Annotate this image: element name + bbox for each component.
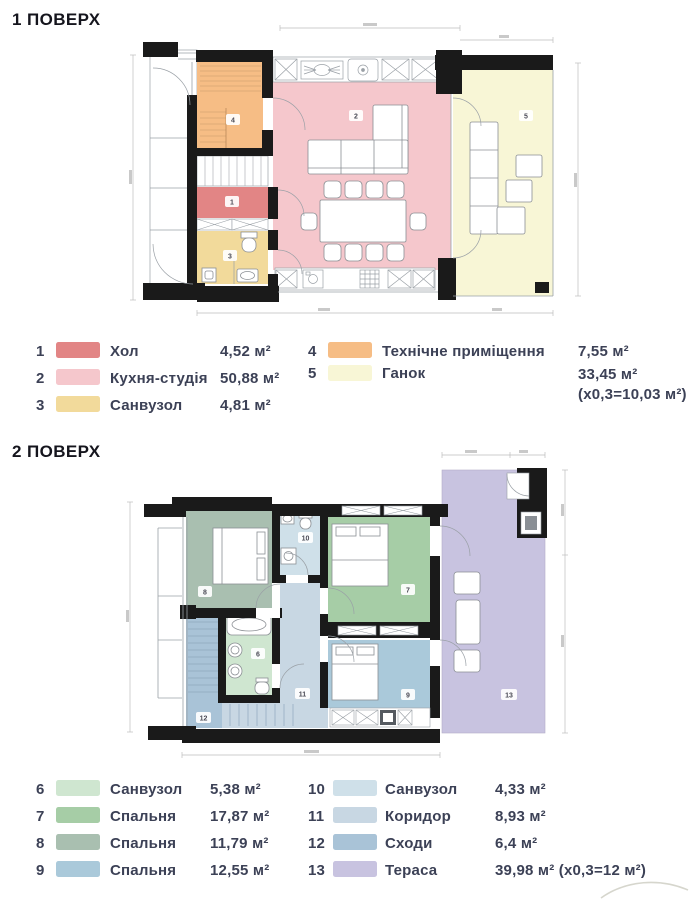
legend-item: 4 Технічне приміщення 7,55 м² (308, 338, 688, 365)
legend-area: 7,55 м² (578, 342, 688, 362)
chair-icon (324, 181, 341, 198)
table-icon (516, 155, 542, 177)
floor2-legend-right: 10 Санвузол 4,33 м² 11 Коридор 8,93 м² 1… (308, 776, 688, 884)
color-swatch (56, 780, 100, 796)
cabinet-x-icon (197, 219, 268, 230)
sink-icon (228, 643, 242, 657)
room-technical (197, 62, 263, 152)
svg-text:6: 6 (256, 652, 260, 659)
svg-text:9: 9 (406, 693, 410, 700)
legend-area: 4,52 м² (220, 342, 301, 362)
color-swatch (56, 834, 100, 850)
room-stairs-12 (186, 613, 222, 728)
chair-icon (454, 572, 480, 594)
legend-label: Санвузол (110, 781, 210, 798)
floor1-plan: 4 2 1 3 5 (120, 8, 690, 328)
color-swatch (56, 861, 100, 877)
color-swatch (328, 342, 372, 358)
legend-area: 5,38 м² (210, 780, 301, 800)
floor2-plan: 8 10 7 12 6 11 9 13 (110, 440, 590, 770)
color-swatch (333, 834, 377, 850)
legend-item: 7 Спальня 17,87 м² (36, 803, 301, 830)
legend-label: Коридор (385, 808, 495, 825)
legend-area: 50,88 м² (220, 369, 301, 389)
chair-icon (387, 244, 404, 261)
legend-item: 12 Сходи 6,4 м² (308, 830, 688, 857)
legend-label: Хол (110, 343, 220, 360)
color-swatch (333, 780, 377, 796)
chair-icon (454, 650, 480, 672)
chair-icon (366, 181, 383, 198)
floor2-heading: 2 ПОВЕРХ (12, 442, 100, 462)
svg-text:12: 12 (200, 716, 208, 723)
legend-label: Тераса (385, 862, 495, 879)
legend-item: 10 Санвузол 4,33 м² (308, 776, 688, 803)
svg-text:4: 4 (231, 118, 235, 125)
toilet-icon (255, 678, 269, 694)
legend-label: Сходи (385, 835, 495, 852)
legend-item: 11 Коридор 8,93 м² (308, 803, 688, 830)
washer-icon (205, 271, 213, 279)
legend-area: 33,45 м²(х0,3=10,03 м²) (578, 365, 688, 404)
color-swatch (56, 342, 100, 358)
chair-icon (345, 181, 362, 198)
legend-area: 6,4 м² (495, 834, 688, 854)
svg-text:3: 3 (228, 254, 232, 261)
legend-item: 3 Санвузол 4,81 м² (36, 392, 301, 419)
legend-label: Спальня (110, 862, 210, 879)
toilet-icon (241, 232, 257, 252)
svg-text:5: 5 (524, 114, 528, 121)
legend-label: Санвузол (385, 781, 495, 798)
chair-icon (324, 244, 341, 261)
floor1-legend-right: 4 Технічне приміщення 7,55 м² 5 Ганок 33… (308, 338, 688, 404)
legend-area: 4,81 м² (220, 396, 301, 416)
glass-wall (158, 517, 187, 726)
svg-text:13: 13 (505, 693, 513, 700)
sink-icon (228, 664, 242, 678)
legend-item: 9 Спальня 12,55 м² (36, 857, 301, 884)
floor1-legend-left: 1 Хол 4,52 м² 2 Кухня-студія 50,88 м² 3 … (36, 338, 301, 419)
room-porch (453, 70, 553, 296)
legend-label: Спальня (110, 835, 210, 852)
legend-item: 6 Санвузол 5,38 м² (36, 776, 301, 803)
chair-icon (410, 213, 426, 230)
stairs-icon (197, 156, 268, 186)
legend-label: Санвузол (110, 397, 220, 414)
chair-icon (345, 244, 362, 261)
legend-item: 1 Хол 4,52 м² (36, 338, 301, 365)
legend-label: Кухня-студія (110, 370, 220, 387)
legend-label: Технічне приміщення (382, 343, 578, 360)
legend-item: 8 Спальня 11,79 м² (36, 830, 301, 857)
legend-item: 5 Ганок 33,45 м²(х0,3=10,03 м²) (308, 365, 688, 404)
svg-text:2: 2 (354, 114, 358, 121)
color-swatch (328, 365, 372, 381)
page: 1 ПОВЕРХ (0, 0, 691, 900)
svg-text:11: 11 (299, 692, 307, 699)
color-swatch (333, 807, 377, 823)
chair-icon (387, 181, 404, 198)
svg-text:8: 8 (203, 590, 207, 597)
legend-area: 8,93 м² (495, 807, 688, 827)
legend-area: 17,87 м² (210, 807, 301, 827)
color-swatch (56, 807, 100, 823)
legend-item: 2 Кухня-студія 50,88 м² (36, 365, 301, 392)
svg-text:1: 1 (230, 200, 234, 207)
chair-icon (301, 213, 317, 230)
svg-text:10: 10 (302, 536, 310, 543)
legend-area: 11,79 м² (210, 834, 301, 854)
color-swatch (56, 369, 100, 385)
floor1-heading: 1 ПОВЕРХ (12, 10, 100, 30)
stove-icon (348, 59, 378, 81)
terrace-furniture (454, 572, 480, 672)
watermark-arc (598, 874, 691, 900)
floor2-legend-left: 6 Санвузол 5,38 м² 7 Спальня 17,87 м² 8 … (36, 776, 301, 884)
table-icon (506, 180, 532, 202)
legend-label: Ганок (382, 365, 578, 382)
kitchen-counter (275, 268, 435, 290)
kitchen-counter (273, 57, 443, 82)
legend-area: 4,33 м² (495, 780, 688, 800)
color-swatch (333, 861, 377, 877)
table-icon (456, 600, 480, 644)
legend-area: 12,55 м² (210, 861, 301, 881)
appliance-hatch-icon (360, 270, 379, 288)
sofa-icon (497, 207, 525, 234)
sink-icon (301, 61, 343, 79)
sink-icon (237, 269, 258, 282)
chair-icon (366, 244, 383, 261)
legend-label: Спальня (110, 808, 210, 825)
washer-icon (281, 548, 296, 564)
svg-text:7: 7 (406, 588, 410, 595)
color-swatch (56, 396, 100, 412)
dishwasher-icon (303, 270, 323, 288)
